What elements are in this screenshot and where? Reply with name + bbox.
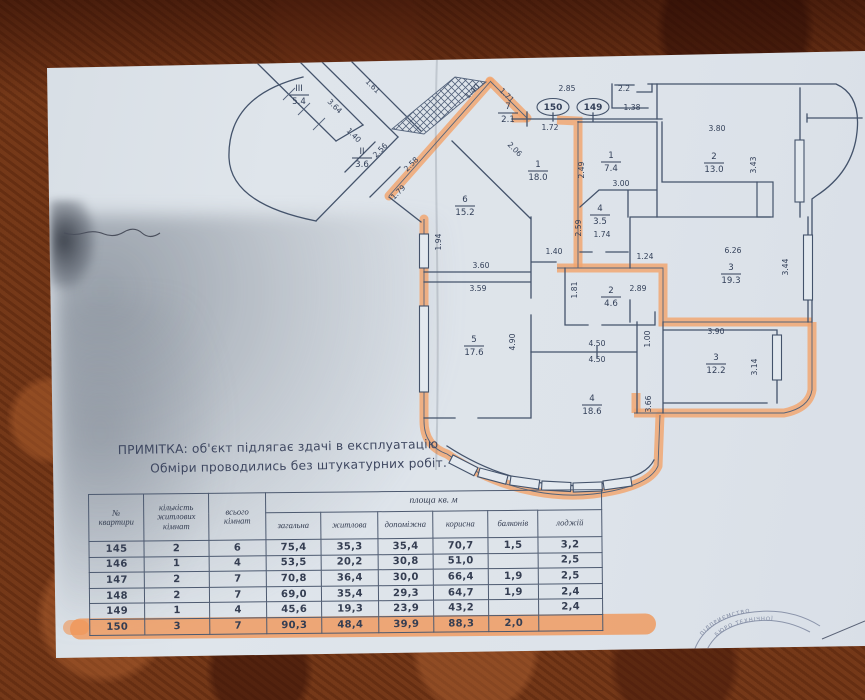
stray-line [822, 621, 865, 639]
table-cell: 147 [89, 572, 144, 588]
table-cell: 7 [210, 618, 267, 634]
table-cell: 4 [209, 555, 266, 571]
room-number: 6 [462, 195, 467, 205]
table-cell: 148 [89, 588, 144, 604]
dim-label: 1.72 [542, 123, 559, 132]
room-number: 3 [728, 263, 733, 273]
table-cell: 2,5 [538, 552, 602, 568]
dim-label: 2.2 [618, 84, 630, 93]
table-cell: 1 [144, 556, 209, 572]
dim-label: 2.59 [574, 219, 583, 236]
apartments-table: № квартири кількість житлових кімнат всь… [88, 489, 603, 635]
unit-number: 149 [584, 103, 603, 113]
table-cell: 23,9 [379, 601, 434, 617]
apartment-150-outline-highlight [389, 81, 812, 495]
dim-label: 1.61 [364, 77, 382, 95]
photo-of-floor-plan-document: ПІДПРИЄМСТВО БЮРО ТЕХНІЧНОЇ 150149 III5.… [0, 0, 865, 700]
stamp: ПІДПРИЄМСТВО БЮРО ТЕХНІЧНОЇ [694, 608, 820, 652]
table-cell: 75,4 [266, 539, 321, 555]
room-number: 1 [608, 151, 613, 161]
dim-label: 1.79 [389, 183, 407, 201]
table-cell: 1,9 [488, 584, 538, 600]
col-header-useful-area: корисна [433, 511, 488, 539]
table-cell [488, 553, 538, 569]
room-number: 4 [597, 204, 602, 214]
dim-label: 2.49 [577, 161, 586, 178]
room-area: 12.2 [706, 366, 725, 376]
pen-scribble [64, 229, 160, 236]
dim-label: 1.94 [434, 233, 443, 250]
table-cell: 150 [90, 619, 145, 635]
table-cell: 51,0 [433, 553, 488, 569]
col-header-living-rooms: кількість житлових кімнат [144, 493, 209, 541]
table-cell: 30,8 [378, 554, 433, 570]
table-cell: 64,7 [433, 584, 488, 600]
table-cell: 39,9 [379, 616, 434, 632]
table-cell: 90,3 [267, 617, 322, 633]
dim-label: 3.64 [326, 97, 344, 115]
room-area: 13.0 [704, 165, 723, 175]
table-cell: 29,3 [378, 585, 433, 601]
room-number: 3 [713, 353, 718, 363]
dim-label: 1.24 [637, 252, 654, 261]
table-cell [539, 615, 603, 631]
dim-label: 6.26 [725, 246, 742, 255]
table-cell: 2,5 [538, 568, 602, 584]
table-cell: 53,5 [266, 555, 321, 571]
table-cell: 43,2 [434, 600, 489, 616]
table-cell: 2 [144, 540, 209, 556]
room-number: 4 [589, 394, 594, 404]
table-cell: 88,3 [434, 616, 489, 632]
table-cell: 19,3 [322, 601, 379, 617]
table-cell: 1,5 [488, 537, 538, 553]
room-number: 5 [471, 335, 476, 345]
col-header-apartment: № квартири [89, 494, 144, 542]
table-cell: 36,4 [321, 570, 378, 586]
room-area: 7.4 [604, 164, 618, 174]
col-header-loggia-area: лоджій [538, 510, 602, 538]
room-number: II [359, 147, 364, 157]
note-text: ПРИМІТКА: об'єкт підлягає здачі в експлу… [118, 435, 449, 479]
table-cell: 2,4 [538, 583, 602, 599]
dim-label: 3.60 [473, 261, 490, 270]
table-cell: 2 [144, 572, 209, 588]
room-area: 2.1 [501, 115, 515, 125]
table-cell [489, 600, 539, 616]
room-area: 5.4 [292, 97, 306, 107]
table-cell: 35,4 [378, 538, 433, 554]
table-cell: 70,8 [266, 570, 321, 586]
room-area: 19.3 [721, 276, 740, 286]
dim-label: 2.85 [559, 84, 576, 93]
room-number: III [295, 84, 303, 94]
dim-label: 3.43 [749, 156, 758, 173]
col-header-balcony-area: балконів [488, 510, 538, 537]
room-area: 3.5 [593, 217, 607, 227]
room-area: 18.0 [528, 173, 547, 183]
room-area: 4.6 [604, 299, 618, 309]
room-area: 18.6 [582, 407, 601, 417]
unit-number-labels: 150149 [537, 99, 609, 116]
dim-label: 4.50 [589, 355, 606, 364]
dim-label: 1.40 [345, 126, 363, 144]
table-cell: 2 [144, 587, 209, 603]
table-cell: 66,4 [433, 569, 488, 585]
table-cell: 3 [145, 618, 210, 634]
dim-label: 3.90 [708, 327, 725, 336]
table-cell: 1,9 [488, 568, 538, 584]
table-cell: 35,4 [321, 585, 378, 601]
room-area: 15.2 [455, 208, 474, 218]
room-area: 17.6 [464, 348, 483, 358]
unit-number: 150 [544, 103, 563, 113]
dim-label: 2.89 [630, 284, 647, 293]
dim-label: 3.66 [644, 395, 653, 412]
table-cell: 7 [209, 571, 266, 587]
dim-label: 1.38 [624, 103, 641, 112]
col-header-total-rooms: всього кімнат [208, 493, 265, 541]
table-cell: 1 [145, 603, 210, 619]
dim-label: 3.44 [781, 258, 790, 275]
document-paper: ПІДПРИЄМСТВО БЮРО ТЕХНІЧНОЇ 150149 III5.… [0, 0, 865, 700]
table-cell: 45,6 [267, 602, 322, 618]
table-cell: 3,2 [538, 537, 602, 553]
dim-label: 1.00 [643, 330, 652, 347]
table-cell: 35,3 [321, 539, 378, 555]
dim-label: 3.59 [470, 284, 487, 293]
table-cell: 2,4 [539, 599, 603, 615]
table-cell: 30,0 [378, 569, 433, 585]
table-cell: 146 [89, 557, 144, 573]
table-cell: 48,4 [322, 617, 379, 633]
col-header-living-area: житлова [321, 512, 378, 540]
room-area: 3.6 [355, 160, 369, 170]
table-cell: 4 [210, 602, 267, 618]
dim-label: 1.40 [546, 247, 563, 256]
table-cell: 20,2 [321, 554, 378, 570]
table-cell: 70,7 [433, 538, 488, 554]
dim-label: 4.50 [589, 339, 606, 348]
col-header-total-area: загальна [266, 512, 321, 540]
dim-label: 1.74 [594, 230, 611, 239]
table-cell: 149 [90, 603, 145, 619]
dim-label: 3.00 [613, 179, 630, 188]
table-cell: 2,0 [489, 615, 539, 631]
table-cell: 7 [209, 587, 266, 603]
room-number: 2 [711, 152, 716, 162]
table-cell: 6 [209, 540, 266, 556]
room-number: 1 [535, 160, 540, 170]
col-header-aux-area: допоміжна [378, 511, 433, 539]
dim-label: 3.80 [709, 124, 726, 133]
dim-label: 2.06 [506, 140, 524, 158]
table-cell: 69,0 [266, 586, 321, 602]
dim-label: 4.90 [508, 333, 517, 350]
dim-label: 3.14 [750, 358, 759, 375]
room-number: 2 [608, 286, 613, 296]
table-cell: 145 [89, 541, 144, 557]
dim-label: 1.81 [570, 281, 579, 298]
